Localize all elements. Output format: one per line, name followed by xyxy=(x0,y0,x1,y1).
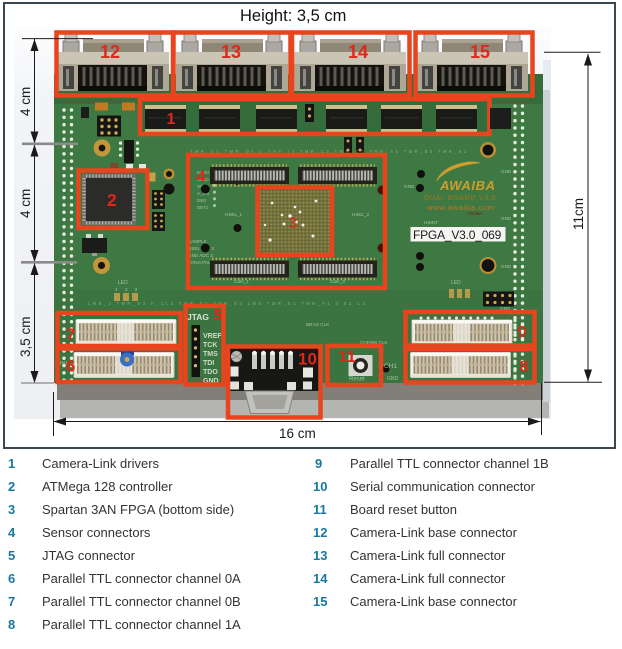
svg-text:GND: GND xyxy=(387,376,399,382)
svg-text:12: 12 xyxy=(313,525,327,540)
svg-text:GND: GND xyxy=(501,169,512,174)
svg-text:www.awaiba.com: www.awaiba.com xyxy=(426,203,495,212)
svg-text:Height: 3,5 cm: Height: 3,5 cm xyxy=(240,7,346,25)
svg-text:8: 8 xyxy=(520,359,529,376)
svg-text:14: 14 xyxy=(313,571,328,586)
svg-text:13: 13 xyxy=(313,548,327,563)
svg-text:6: 6 xyxy=(8,571,15,586)
svg-text:Parallel TTL connector channel: Parallel TTL connector channel 1A xyxy=(42,617,241,632)
svg-text:1: 1 xyxy=(167,111,176,128)
svg-text:AWAIBA: AWAIBA xyxy=(439,178,496,193)
svg-text:TMS: TMS xyxy=(203,351,218,358)
svg-text:TCK: TCK xyxy=(203,342,217,349)
svg-text:HSEL_1: HSEL_1 xyxy=(225,212,243,217)
svg-text:7: 7 xyxy=(66,325,75,344)
svg-text:GND: GND xyxy=(501,216,512,221)
svg-text:HSINT: HSINT xyxy=(424,220,438,225)
svg-text:JTAG: JTAG xyxy=(187,312,209,322)
svg-text:Camera-Link full connector: Camera-Link full connector xyxy=(350,571,506,586)
svg-text:12: 12 xyxy=(100,42,120,62)
svg-text:LED: LED xyxy=(118,280,128,286)
svg-text:HSEL_2: HSEL_2 xyxy=(352,212,370,217)
svg-text:JTAG connector: JTAG connector xyxy=(42,548,136,563)
svg-text:Cam_1: Cam_1 xyxy=(234,279,249,284)
svg-text:3,5 cm: 3,5 cm xyxy=(18,316,33,357)
svg-text:Parallel TTL connector channel: Parallel TTL connector channel 0B xyxy=(42,594,241,609)
svg-text:GND: GND xyxy=(404,184,415,189)
svg-text:3: 3 xyxy=(8,502,15,517)
svg-text:9: 9 xyxy=(315,456,322,471)
svg-text:10: 10 xyxy=(298,350,317,369)
svg-text:11cm: 11cm xyxy=(571,198,586,230)
svg-text:Reset: Reset xyxy=(349,377,365,383)
svg-text:15: 15 xyxy=(470,42,490,62)
svg-text:SAMPLE: SAMPLE xyxy=(188,239,207,244)
svg-text:5: 5 xyxy=(8,548,15,563)
svg-text:2: 2 xyxy=(107,190,117,210)
svg-text:GND ADC 3: GND ADC 3 xyxy=(188,253,213,258)
svg-text:11: 11 xyxy=(313,502,327,517)
svg-text:Spartan 3AN FPGA (bottom side): Spartan 3AN FPGA (bottom side) xyxy=(42,502,234,517)
svg-text:15: 15 xyxy=(313,594,327,609)
svg-text:Sensor connectors: Sensor connectors xyxy=(42,525,151,540)
svg-text:Camera-Link drivers: Camera-Link drivers xyxy=(42,456,160,471)
svg-text:1 2 3: 1 2 3 xyxy=(115,287,140,292)
svg-text:16 cm: 16 cm xyxy=(279,426,316,441)
svg-text:TDI: TDI xyxy=(203,360,214,367)
svg-text:Camera-Link base connector: Camera-Link base connector xyxy=(350,594,518,609)
svg-text:4: 4 xyxy=(8,525,16,540)
svg-text:10: 10 xyxy=(313,479,327,494)
svg-text:CH1: CH1 xyxy=(384,363,397,370)
svg-text:4 cm: 4 cm xyxy=(18,189,33,218)
svg-text:5: 5 xyxy=(214,307,223,324)
svg-text:FPGA_V3.0_069: FPGA_V3.0_069 xyxy=(413,228,502,242)
svg-text:VREF: VREF xyxy=(203,333,222,340)
svg-text:Serial communication connector: Serial communication connector xyxy=(350,479,536,494)
svg-text:Cam_3: Cam_3 xyxy=(330,279,345,284)
svg-text:4 cm: 4 cm xyxy=(18,87,33,116)
svg-text:8: 8 xyxy=(8,617,15,632)
svg-text:VIGMA: VIGMA xyxy=(468,211,483,216)
svg-text:11: 11 xyxy=(338,347,356,366)
svg-text:14: 14 xyxy=(348,42,368,62)
svg-text:DE0: DE0 xyxy=(197,198,206,203)
svg-text:7: 7 xyxy=(8,594,15,609)
svg-text:LMB_J TMR_E3 F_CL3 TMR_F2 TMR_: LMB_J TMR_E3 F_CL3 TMR_F2 TMR_E3 LMB TMR… xyxy=(88,301,367,306)
svg-text:Board reset button: Board reset button xyxy=(350,502,457,517)
svg-text:ATMega 128 controller: ATMega 128 controller xyxy=(42,479,173,494)
svg-text:BB.Hz CLK: BB.Hz CLK xyxy=(306,322,330,327)
svg-text:4: 4 xyxy=(197,169,206,186)
svg-text:DUAL BOARD V3.0: DUAL BOARD V3.0 xyxy=(424,195,496,202)
svg-text:3: 3 xyxy=(289,215,298,232)
svg-text:GND: GND xyxy=(501,264,512,269)
svg-text:Camera-Link base connector: Camera-Link base connector xyxy=(350,525,518,540)
svg-text:Camera-Link full connector: Camera-Link full connector xyxy=(350,548,506,563)
svg-text:1: 1 xyxy=(8,456,15,471)
svg-text:Parallel TTL connector channel: Parallel TTL connector channel 0A xyxy=(42,571,241,586)
svg-text:Parallel TTL connector channel: Parallel TTL connector channel 1B xyxy=(350,456,549,471)
svg-text:LED: LED xyxy=(451,280,461,286)
svg-text:TDO: TDO xyxy=(203,369,218,376)
svg-text:2: 2 xyxy=(8,479,15,494)
svg-text:SET1: SET1 xyxy=(197,205,209,210)
svg-text:13: 13 xyxy=(221,42,241,62)
svg-text:6: 6 xyxy=(66,357,75,376)
